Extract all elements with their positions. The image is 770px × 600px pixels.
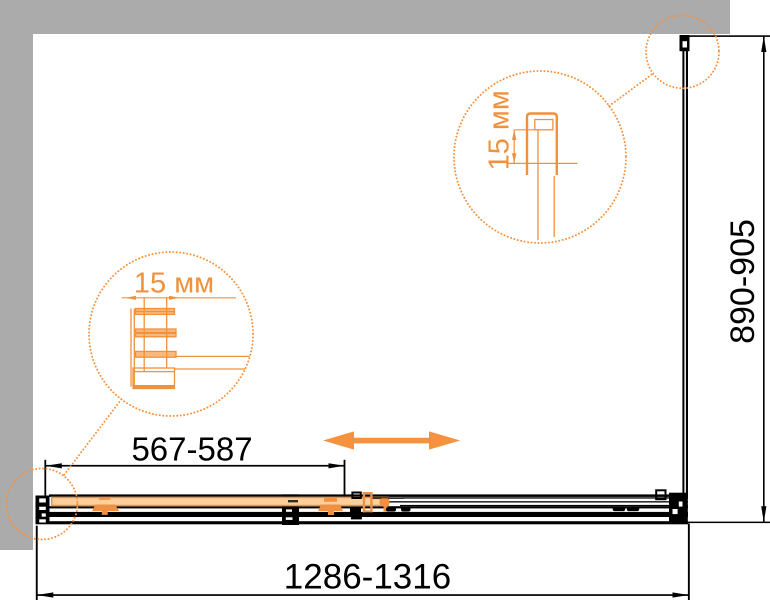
svg-text:567-587: 567-587 [131, 431, 252, 468]
svg-text:15 мм: 15 мм [484, 90, 516, 170]
svg-text:890-905: 890-905 [724, 219, 762, 344]
svg-text:15 мм: 15 мм [134, 268, 214, 300]
svg-text:1286-1316: 1286-1316 [284, 558, 451, 597]
